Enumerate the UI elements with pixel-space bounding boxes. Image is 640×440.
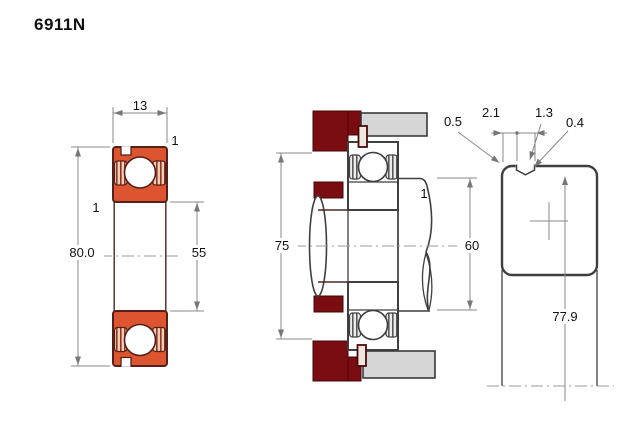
- front-outer-diameter-dim-label: 80.0: [60, 245, 104, 260]
- part-number-title: 6911N: [34, 15, 86, 35]
- drawing-canvas: [0, 0, 640, 440]
- groove-diameter-dim-label: 77.9: [544, 309, 586, 324]
- front-inner-chamfer-dim-label: 1: [90, 200, 102, 215]
- bearing-datasheet-drawing: 6911N 13 1 1 80.0 55 75 1 60 0.5 2.1 1.3…: [0, 0, 640, 440]
- groove-detail-drawing: [458, 124, 614, 401]
- groove-radius-dim-label: 0.4: [563, 115, 587, 130]
- mounted-housing-shoulder-dim-label: 75: [266, 238, 298, 253]
- front-width-dim-label: 13: [126, 98, 154, 113]
- mounted-view-drawing: [272, 111, 477, 381]
- groove-position-dim-label: 2.1: [479, 105, 503, 120]
- front-bore-diameter-dim-label: 55: [185, 245, 213, 260]
- front-view-drawing: [71, 107, 204, 367]
- mounted-chamfer-dim-label: 1: [418, 186, 430, 201]
- groove-width-dim-label: 1.3: [532, 105, 556, 120]
- front-outer-chamfer-dim-label: 1: [169, 133, 181, 148]
- groove-edge-chamfer-dim-label: 0.5: [441, 114, 465, 129]
- mounted-shaft-shoulder-dim-label: 60: [457, 238, 487, 253]
